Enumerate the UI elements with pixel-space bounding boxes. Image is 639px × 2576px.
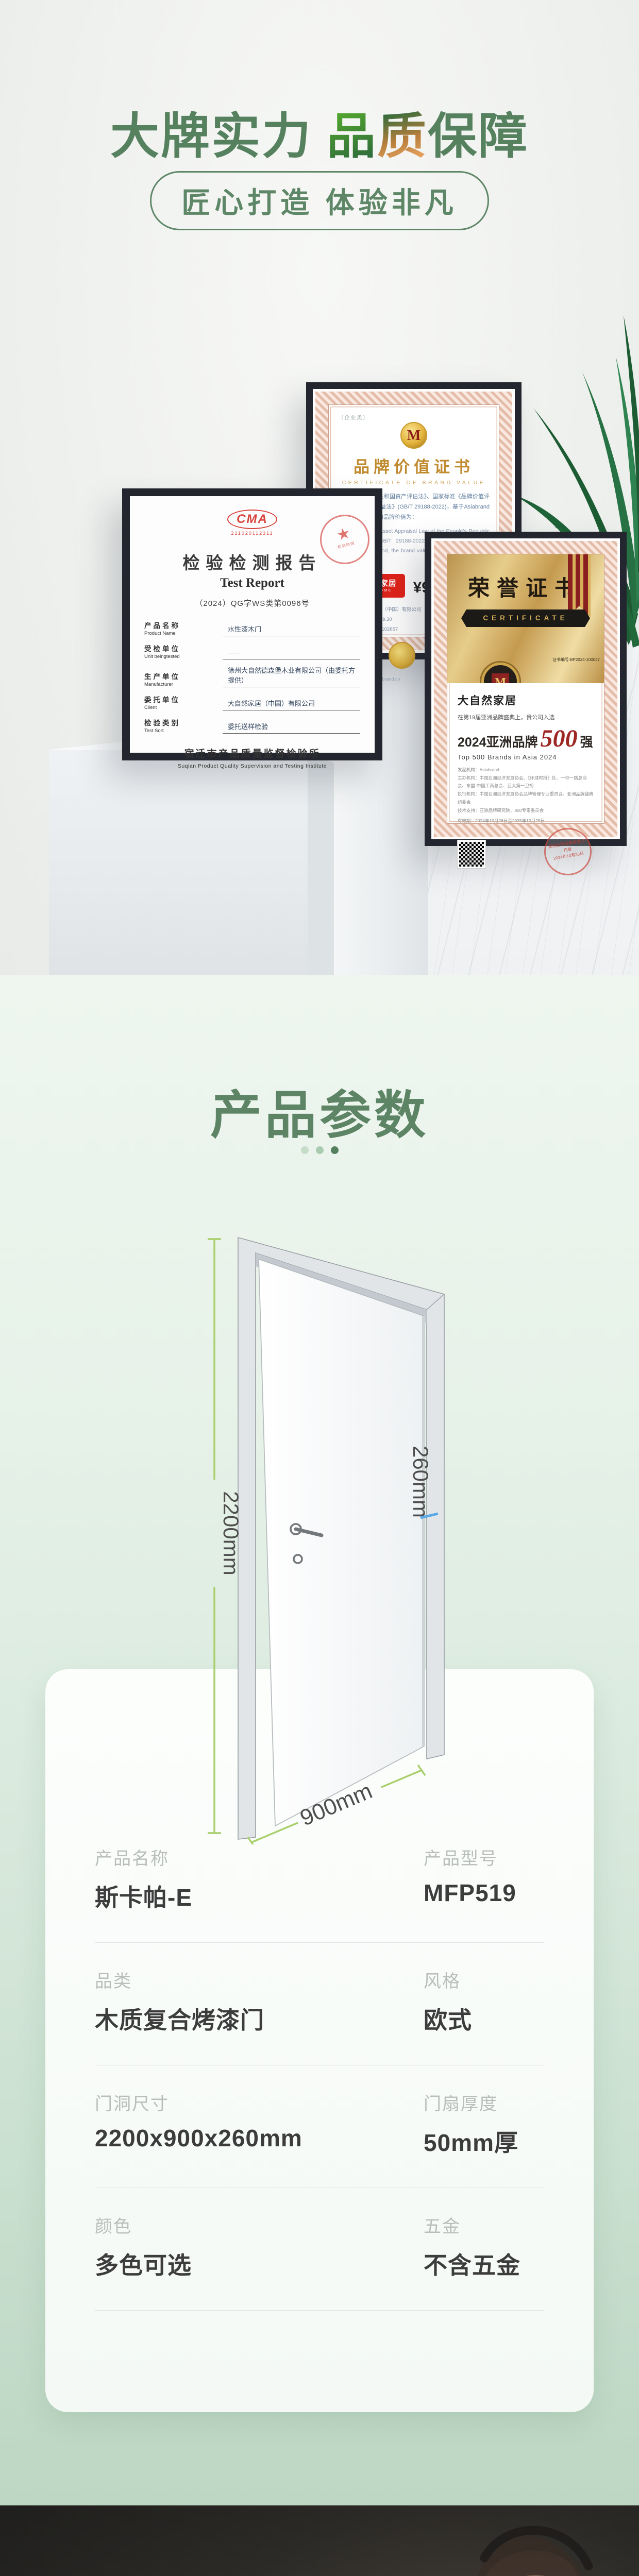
field-row: 生产单位Manufacturer 徐州大自然德森堡木业有限公司（由委托方提供） xyxy=(144,666,360,687)
gold-medal-icon: M xyxy=(400,422,427,449)
dot-icon xyxy=(301,1146,309,1154)
medal-badge-icon: M xyxy=(481,663,519,683)
divider xyxy=(95,1942,544,1943)
test-report-org-en: Suqian Product Quality Supervision and T… xyxy=(144,763,360,769)
dark-overlay xyxy=(0,2505,639,2576)
hero-title-char-pin: 品 xyxy=(327,109,377,164)
hero-title-part3: 保障 xyxy=(428,109,529,164)
hero-subtitle-wrap: 匠心打造 体验非凡 xyxy=(0,171,639,230)
qr-code-icon xyxy=(458,840,485,868)
honor-award-row: 2024亚洲品牌 500 强 xyxy=(458,727,594,751)
door-height-label: 2200mm xyxy=(219,1491,243,1575)
divider xyxy=(95,2310,544,2311)
honor-gold-plate: 荣誉证书 CERTIFICATE 证书编号:BP2024-100047 M xyxy=(447,554,604,683)
hero-title-part1: 大牌实力 xyxy=(110,109,312,164)
honor-validity: 有效期：2024年10月26日至2025年10月25日 xyxy=(458,818,594,824)
honor-brand: 大自然家居 xyxy=(458,692,594,708)
ribbon-icon xyxy=(568,554,591,617)
door-leaf xyxy=(259,1259,424,1826)
test-report-number: （2024）QG字WS类第0096号 xyxy=(144,598,360,608)
product-detail-page: 大牌实力品质保障 匠心打造 体验非凡 ★ 检验检测 CMA xyxy=(0,0,639,2576)
certificate-honor: 荣誉证书 CERTIFICATE 证书编号:BP2024-100047 M 大自… xyxy=(425,532,627,846)
divider xyxy=(95,2188,544,2188)
divider xyxy=(95,2065,544,2065)
honor-title-en: CERTIFICATE xyxy=(461,609,590,627)
red-stamp-icon: 亚洲品牌盛典组委会 代章 2024年10月26日 xyxy=(541,824,596,879)
podium-cube-front xyxy=(49,750,308,975)
honor-details: 发起机构：Asiabrand 主办机构：中国亚洲经济发展协会、《环球时报》社、一… xyxy=(458,766,594,815)
dot-icon xyxy=(331,1146,339,1154)
test-report-title-en: Test Report xyxy=(144,576,360,590)
params-section: 产品参数 xyxy=(0,975,639,2505)
hero-section: 大牌实力品质保障 匠心打造 体验非凡 ★ 检验检测 CMA xyxy=(0,0,639,975)
honor-cert-no: 证书编号:BP2024-100047 xyxy=(552,657,600,663)
door-depth-label: 260mm xyxy=(409,1446,433,1518)
hero-subtitle: 匠心打造 体验非凡 xyxy=(150,171,489,230)
dot-icon xyxy=(316,1146,324,1154)
field-row: 检验类别Test Sort 委托送样检验 xyxy=(144,717,360,734)
honor-award-en: Top 500 Brands in Asia 2024 xyxy=(458,753,594,761)
hero-title: 大牌实力品质保障 xyxy=(0,112,639,161)
category-label: ·（企业类）· xyxy=(338,413,490,421)
honor-line1: 在第19届亚洲品牌盛典上，贵公司入选 xyxy=(458,713,594,721)
field-row: 委托单位Client 大自然家居（中国）有限公司 xyxy=(144,694,360,710)
field-row: 受检单位Unit beingtested —— xyxy=(144,643,360,659)
hero-title-char-zhi: 质 xyxy=(377,109,428,164)
gold-seal-icon xyxy=(389,642,415,669)
honor-paper: 荣誉证书 CERTIFICATE 证书编号:BP2024-100047 M 大自… xyxy=(447,554,604,824)
door-dimension-diagram: 2200mm 260mm 900mm xyxy=(191,1195,551,1844)
brand-value-title-cn: 品牌价值证书 xyxy=(338,454,490,477)
field-row: 产品名称Product Name 水性漆木门 xyxy=(144,620,360,636)
brand-value-title-en: CERTIFICATE OF BRAND VALUE xyxy=(338,480,490,486)
params-section-title: 产品参数 xyxy=(0,1073,639,1148)
test-report-org-cn: 宿迁市产品质量监督检验所 xyxy=(144,746,360,760)
service-section: 金保姆服务 全国1000+实体门店支持 咨询下单 › xyxy=(0,2505,639,2576)
test-report-fields: 产品名称Product Name 水性漆木门 受检单位Unit beingtes… xyxy=(144,620,360,734)
certificate-test-report: ★ 检验检测 CMA 211020112311 检验检测报告 Test Repo… xyxy=(122,488,382,760)
title-dots xyxy=(0,1146,639,1154)
